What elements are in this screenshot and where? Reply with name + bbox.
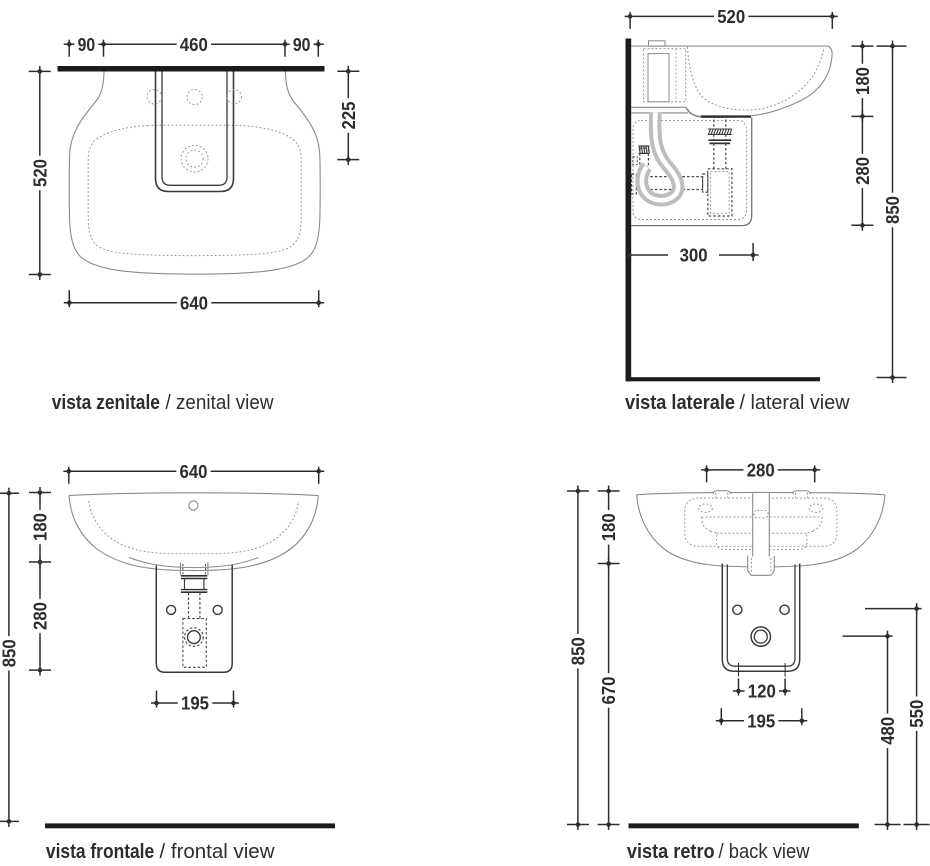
svg-text:vista zenitale: vista zenitale [52, 392, 160, 414]
svg-text:640: 640 [180, 292, 208, 313]
svg-text:/ frontal view: / frontal view [160, 841, 276, 863]
svg-text:520: 520 [717, 6, 745, 27]
svg-text:280: 280 [747, 460, 775, 481]
svg-text:/ back view: / back view [719, 841, 811, 863]
svg-text:640: 640 [180, 461, 208, 482]
svg-text:850: 850 [882, 196, 903, 224]
svg-text:120: 120 [748, 681, 776, 702]
svg-text:195: 195 [181, 693, 209, 714]
svg-text:670: 670 [598, 677, 619, 705]
svg-text:90: 90 [78, 34, 96, 55]
svg-text:520: 520 [29, 159, 50, 187]
svg-text:850: 850 [568, 637, 589, 665]
svg-text:480: 480 [877, 717, 898, 745]
svg-text:180: 180 [598, 513, 619, 541]
svg-text:vista laterale: vista laterale [625, 392, 735, 414]
svg-text:vista frontale: vista frontale [46, 841, 154, 863]
svg-text:850: 850 [0, 639, 19, 667]
svg-text:550: 550 [906, 700, 927, 728]
svg-text:225: 225 [338, 102, 359, 130]
svg-text:/ lateral view: / lateral view [740, 392, 851, 414]
svg-text:180: 180 [30, 513, 51, 541]
svg-text:460: 460 [180, 34, 208, 55]
svg-text:300: 300 [680, 245, 708, 266]
svg-text:280: 280 [30, 602, 51, 630]
svg-text:195: 195 [747, 710, 775, 731]
svg-text:vista retro: vista retro [627, 841, 715, 863]
svg-text:280: 280 [852, 157, 873, 185]
svg-text:/ zenital view: / zenital view [166, 392, 275, 414]
svg-text:180: 180 [852, 67, 873, 95]
svg-text:90: 90 [293, 34, 311, 55]
